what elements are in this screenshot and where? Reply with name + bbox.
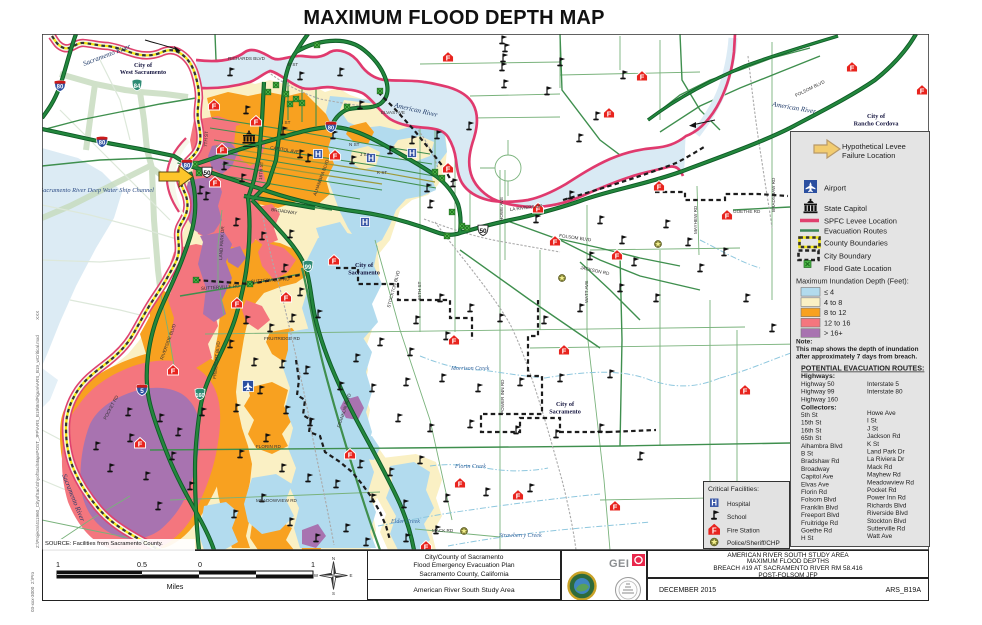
svg-text:K St: K St <box>867 441 879 448</box>
svg-text:≤ 4: ≤ 4 <box>824 288 834 297</box>
svg-text:H St: H St <box>801 535 814 542</box>
svg-text:99: 99 <box>305 265 312 271</box>
svg-text:> 16+: > 16+ <box>824 329 843 338</box>
svg-text:POWER INN RD: POWER INN RD <box>500 379 505 414</box>
svg-text:Interstate 5: Interstate 5 <box>867 381 899 388</box>
svg-text:Mayhew Rd: Mayhew Rd <box>867 472 901 479</box>
svg-text:B St: B St <box>801 451 813 458</box>
svg-text:Hypothetical Levee: Hypothetical Levee <box>842 142 906 151</box>
svg-text:Pocket Rd: Pocket Rd <box>867 487 897 494</box>
svg-text:65TH ST: 65TH ST <box>417 281 422 300</box>
svg-text:Broadway: Broadway <box>801 466 830 473</box>
svg-text:80: 80 <box>184 164 191 170</box>
svg-text:15th St: 15th St <box>801 420 821 427</box>
svg-text:I St: I St <box>867 418 877 425</box>
svg-text:Florin Creek: Florin Creek <box>454 464 486 470</box>
svg-text:Collectors:: Collectors: <box>801 405 837 412</box>
svg-text:0.5: 0.5 <box>137 560 147 569</box>
svg-text:12 to 16: 12 to 16 <box>824 318 850 327</box>
svg-text:Fruitridge Rd: Fruitridge Rd <box>801 520 838 527</box>
svg-text:4 to 8: 4 to 8 <box>824 298 842 307</box>
svg-text:80: 80 <box>328 126 334 132</box>
svg-text:MEADOWVIEW RD: MEADOWVIEW RD <box>256 498 298 503</box>
svg-text:Elder Creek: Elder Creek <box>390 519 420 525</box>
svg-text:RICHARDS BLVD: RICHARDS BLVD <box>228 56 266 61</box>
svg-text:Freeport Blvd: Freeport Blvd <box>801 512 840 519</box>
svg-text:City Boundary: City Boundary <box>824 252 871 261</box>
svg-text:City of: City of <box>867 113 886 120</box>
svg-text:H: H <box>711 499 717 508</box>
svg-text:SPFC Levee Location: SPFC Levee Location <box>824 217 897 226</box>
svg-text:K ST: K ST <box>377 170 387 175</box>
svg-text:B ST: B ST <box>288 62 298 67</box>
svg-text:I ST: I ST <box>282 120 291 125</box>
svg-text:Bradshaw Rd: Bradshaw Rd <box>801 458 840 465</box>
svg-text:WATT AVE: WATT AVE <box>584 281 589 303</box>
svg-text:Interstate 80: Interstate 80 <box>867 389 903 396</box>
svg-text:City of: City of <box>134 62 153 69</box>
svg-text:N ST: N ST <box>349 142 360 147</box>
svg-text:Franklin Blvd: Franklin Blvd <box>801 504 838 511</box>
svg-text:Highway 160: Highway 160 <box>801 396 838 403</box>
svg-text:0: 0 <box>198 560 202 569</box>
svg-text:City of: City of <box>556 401 575 408</box>
svg-text:Critical Facilities:: Critical Facilities: <box>708 486 759 493</box>
svg-text:Maximum Inundation Depth (Feet: Maximum Inundation Depth (Feet): <box>796 277 909 286</box>
svg-text:POTENTIAL EVACUATION ROUTES:: POTENTIAL EVACUATION ROUTES: <box>801 364 924 373</box>
svg-text:Airport: Airport <box>824 184 847 193</box>
svg-text:5th St: 5th St <box>801 412 818 419</box>
svg-text:Sacramento: Sacramento <box>348 270 380 277</box>
svg-text:E: E <box>349 573 352 578</box>
svg-text:Land Park Dr: Land Park Dr <box>867 449 906 456</box>
svg-text:S: S <box>332 591 335 596</box>
svg-text:Fire Station: Fire Station <box>727 528 760 535</box>
svg-text:Alhambra Blvd: Alhambra Blvd <box>801 443 843 450</box>
svg-text:after approximately 7 days fro: after approximately 7 days from breach. <box>796 354 917 361</box>
svg-text:Flood Gate Location: Flood Gate Location <box>824 264 892 273</box>
svg-text:Mack Rd: Mack Rd <box>867 464 893 471</box>
svg-text:West Sacramento: West Sacramento <box>120 69 166 76</box>
svg-text:Goethe Rd: Goethe Rd <box>801 528 832 535</box>
svg-text:MACK RD: MACK RD <box>432 528 454 533</box>
svg-text:Highway 99: Highway 99 <box>801 389 835 396</box>
svg-text:W: W <box>314 573 319 578</box>
svg-text:J St: J St <box>867 425 878 432</box>
svg-text:Note:: Note: <box>796 339 812 346</box>
svg-text:N: N <box>332 556 335 561</box>
svg-text:Sutterville Rd: Sutterville Rd <box>867 526 905 533</box>
svg-text:1: 1 <box>56 560 60 569</box>
svg-text:50: 50 <box>203 170 211 177</box>
svg-text:Watt Ave: Watt Ave <box>867 533 893 540</box>
svg-text:Sacramento River Deep Water Sh: Sacramento River Deep Water Ship Channel <box>42 187 154 194</box>
svg-text:65th St: 65th St <box>801 435 821 442</box>
svg-text:MAYHEW RD: MAYHEW RD <box>693 205 698 234</box>
svg-text:Folsom Blvd: Folsom Blvd <box>801 497 837 504</box>
svg-text:Jackson Rd: Jackson Rd <box>867 433 901 440</box>
svg-text:16th St: 16th St <box>801 427 821 434</box>
svg-text:1: 1 <box>311 560 315 569</box>
svg-text:School: School <box>727 514 747 521</box>
svg-text:Police/Sheriff/CHP: Police/Sheriff/CHP <box>727 540 780 547</box>
svg-text:Power Inn Rd: Power Inn Rd <box>867 495 906 502</box>
svg-text:GOETHE RD: GOETHE RD <box>733 209 761 214</box>
svg-text:Hospital: Hospital <box>727 501 750 508</box>
svg-text:Evacuation Routes: Evacuation Routes <box>824 227 887 236</box>
svg-text:5: 5 <box>140 388 144 395</box>
svg-text:Failure Location: Failure Location <box>842 151 895 160</box>
svg-text:Richards Blvd: Richards Blvd <box>867 502 907 509</box>
svg-text:Strawberry Creek: Strawberry Creek <box>499 533 542 539</box>
svg-text:Riverside Blvd: Riverside Blvd <box>867 510 908 517</box>
svg-text:HOWE AVE: HOWE AVE <box>499 197 504 221</box>
svg-text:80: 80 <box>57 85 64 91</box>
svg-text:State Capitol: State Capitol <box>824 204 867 213</box>
svg-text:Rancho Cordova: Rancho Cordova <box>854 121 899 128</box>
svg-text:Sacramento: Sacramento <box>549 409 581 416</box>
svg-text:This map shows the depth of in: This map shows the depth of inundation <box>796 346 919 353</box>
svg-text:160: 160 <box>195 393 204 399</box>
svg-text:La Riviera Dr: La Riviera Dr <box>867 456 905 463</box>
svg-text:84: 84 <box>134 84 141 90</box>
svg-text:Stockton Blvd: Stockton Blvd <box>867 518 907 525</box>
svg-text:Miles: Miles <box>167 582 184 591</box>
svg-text:Florin Rd: Florin Rd <box>801 489 827 496</box>
svg-text:BRADSHAW RD: BRADSHAW RD <box>771 177 776 212</box>
svg-text:8 to 12: 8 to 12 <box>824 308 846 317</box>
svg-text:80: 80 <box>99 141 106 147</box>
svg-text:County Boundaries: County Boundaries <box>824 239 888 248</box>
svg-text:Meadowview Rd: Meadowview Rd <box>867 479 914 486</box>
svg-text:F: F <box>712 526 717 535</box>
svg-text:Elvas Ave: Elvas Ave <box>801 481 829 488</box>
svg-text:Highway 50: Highway 50 <box>801 381 835 388</box>
svg-text:City of: City of <box>355 262 374 269</box>
svg-text:J ST: J ST <box>360 152 370 157</box>
svg-text:Highways:: Highways: <box>801 373 835 380</box>
svg-text:GEI: GEI <box>609 558 629 570</box>
svg-text:50: 50 <box>479 228 487 235</box>
svg-text:FLORIN RD: FLORIN RD <box>256 444 281 449</box>
svg-text:Howe Ave: Howe Ave <box>867 410 896 417</box>
svg-text:FRUITRIDGE RD: FRUITRIDGE RD <box>264 336 301 341</box>
svg-text:Capitol Ave: Capitol Ave <box>801 474 834 481</box>
svg-text:Morrison Creek: Morrison Creek <box>450 366 490 372</box>
